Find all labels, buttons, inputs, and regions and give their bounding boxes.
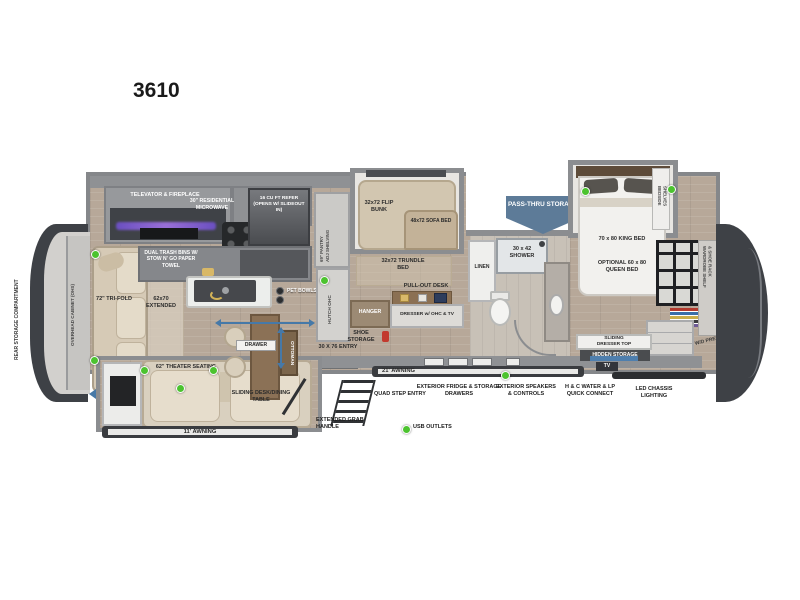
exterior-fridge-door bbox=[424, 358, 444, 366]
refrigerator-label: 16 CU FT REFER (OPENS W/ SLIDEOUT IN) bbox=[252, 196, 306, 214]
queen-option-label: OPTIONAL 60 x 80 QUEEN BED bbox=[594, 260, 650, 274]
pullout-desk-label: PULL-OUT DESK bbox=[398, 283, 454, 290]
faucet-hose-icon bbox=[210, 290, 224, 300]
usb-outlet-dot bbox=[91, 250, 100, 259]
usb-outlet-dot bbox=[209, 366, 218, 375]
ottoman-label: OTTOMAN bbox=[284, 334, 294, 372]
tablet-icon bbox=[434, 293, 447, 303]
front-led-bar bbox=[612, 372, 706, 379]
usb-outlet-dot bbox=[581, 187, 590, 196]
bedside-shelves-label: BEDSIDESHELVES bbox=[656, 186, 667, 232]
page-title: 3610 bbox=[133, 78, 213, 104]
exterior-fridge-label: EXTERIOR FRIDGE & STORAGE DRAWERS bbox=[416, 384, 502, 398]
fire-extinguisher-icon bbox=[382, 331, 389, 342]
dining-chair bbox=[224, 356, 246, 378]
main-awning-label: 21' AWNING bbox=[382, 368, 442, 375]
kitchen-counter-dark bbox=[240, 250, 308, 278]
vanity-sink bbox=[549, 294, 564, 316]
televator-tv bbox=[140, 228, 198, 239]
usb-outlet-dot bbox=[176, 384, 185, 393]
usb-outlet-dot bbox=[501, 371, 510, 380]
rear-storage-label: REAR STORAGE COMPARTMENT bbox=[14, 240, 26, 400]
bunk-dresser-label: DRESSER w/ OHC & TV bbox=[391, 312, 463, 318]
led-chassis-label: LED CHASSIS LIGHTING bbox=[626, 386, 682, 400]
hutch-label: HUTCH OHC bbox=[328, 284, 338, 336]
rear-awning-label: 11' AWNING bbox=[108, 429, 292, 436]
sofa-extended-label: 62x70 EXTENDED bbox=[140, 296, 182, 310]
front-dresser-units bbox=[646, 320, 694, 356]
shower-head-icon bbox=[539, 241, 545, 247]
exterior-storage-drawer bbox=[472, 358, 492, 366]
king-bed-label: 70 x 80 KING BED bbox=[597, 236, 647, 243]
exterior-speaker bbox=[506, 358, 520, 366]
toilet bbox=[489, 298, 511, 326]
living-tv bbox=[110, 376, 136, 406]
rear-ohc-label: OVERHEAD CABINET (OHS) bbox=[70, 246, 81, 384]
pet-bowl-icon bbox=[276, 287, 284, 295]
laptop-icon bbox=[418, 294, 427, 302]
slide-direction-arrow bbox=[84, 389, 96, 399]
bunk-window-strip bbox=[366, 170, 446, 177]
theater-seat bbox=[150, 370, 220, 422]
usb-outlet-dot bbox=[667, 185, 676, 194]
table-slide-arrow-h bbox=[218, 322, 312, 324]
flip-bunk-label: 32x72 FLIP BUNK bbox=[362, 200, 396, 214]
usb-legend-dot bbox=[402, 425, 411, 434]
dresser-top-label: SLIDING DRESSER TOP bbox=[594, 336, 634, 348]
laptop-icon bbox=[400, 294, 409, 302]
pet-bowl-icon bbox=[276, 296, 284, 304]
grab-handle-label: EXTENDED GRAB HANDLE bbox=[316, 417, 372, 431]
exterior-fridge-door bbox=[448, 358, 468, 366]
sliding-table-label: SLIDING DESK/DINING TABLE bbox=[228, 390, 294, 404]
wardrobe-label: WARDROBE SHELF& SHOE RACK bbox=[701, 246, 712, 330]
shoe-storage-label: SHOE STORAGE bbox=[342, 330, 380, 344]
pantry-label: 69" PANTRYADJ SHELVING bbox=[320, 198, 331, 262]
sofa-label: 72" TRI-FOLD bbox=[94, 296, 134, 303]
floorplan-3610: 3610 REAR STORAGE COMPARTMENT OVERHEAD C… bbox=[0, 0, 800, 600]
trash-bins-label: DUAL TRASH BINS W/ STOW N' GO PAPER TOWE… bbox=[141, 250, 201, 269]
drawer-label: DRAWER bbox=[236, 342, 276, 348]
exterior-tv-label: TV bbox=[596, 363, 618, 369]
sofa-bed-label: 48x72 SOFA BED bbox=[408, 218, 454, 224]
exterior-tv-screen bbox=[590, 356, 638, 361]
pet-bowls-label: PET BOWLS bbox=[287, 288, 317, 294]
entry-door-label: 30 X 76 ENTRY bbox=[316, 344, 360, 351]
usb-outlet-dot bbox=[140, 366, 149, 375]
table-slide-arrow-v bbox=[280, 330, 282, 366]
usb-outlet-dot bbox=[320, 276, 329, 285]
shower-label: 30 x 42 SHOWER bbox=[500, 246, 544, 260]
hanger-label: HANGER bbox=[352, 309, 388, 316]
microwave-label: 30" RESIDENTIAL MICROWAVE bbox=[180, 198, 244, 211]
usb-outlet-dot bbox=[90, 356, 99, 365]
sliding-table bbox=[250, 314, 280, 400]
exterior-speakers-label: EXTERIOR SPEAKERS & CONTROLS bbox=[494, 384, 558, 398]
sofa-bed-mattress bbox=[404, 210, 458, 250]
paper-towel-icon bbox=[202, 268, 214, 276]
trundle-label: 32x72 TRUNDLE BED bbox=[380, 258, 426, 272]
water-lp-label: H & C WATER & LP QUICK CONNECT bbox=[556, 384, 624, 398]
linen-label: LINEN bbox=[468, 264, 496, 270]
usb-outlets-label: USB OUTLETS bbox=[413, 424, 463, 431]
